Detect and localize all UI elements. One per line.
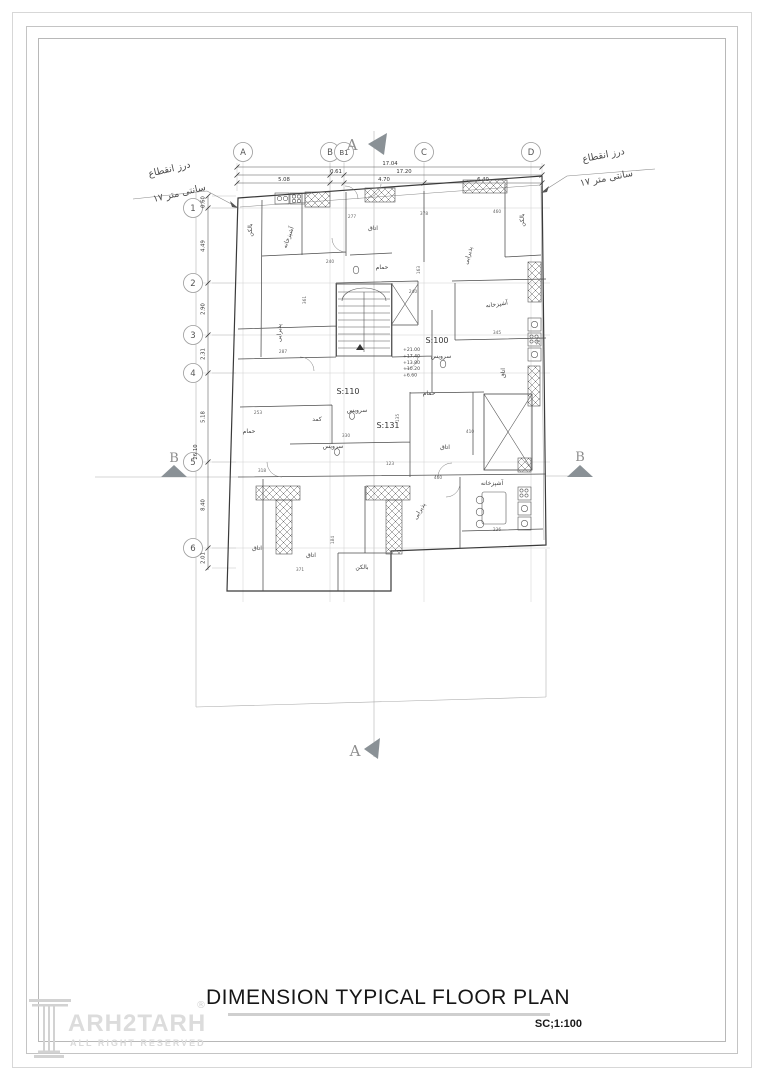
section-a-top-arrow bbox=[368, 133, 387, 155]
grid-label-2: 2 bbox=[190, 279, 195, 289]
toilet bbox=[440, 360, 446, 368]
room-label: اتاق bbox=[252, 545, 262, 552]
small-dim: 163 bbox=[416, 266, 422, 274]
dim-label: 8.40 bbox=[201, 498, 207, 510]
dim-label: 2.01 bbox=[201, 552, 207, 564]
grid-label-4: 4 bbox=[190, 369, 195, 379]
room-label: اتاق bbox=[368, 225, 378, 232]
sheet-title: DIMENSION TYPICAL FLOOR PLAN bbox=[200, 986, 576, 1010]
small-dim: 460 bbox=[434, 475, 442, 481]
title-underline bbox=[228, 1013, 550, 1016]
section-b-left-label: B bbox=[169, 451, 179, 466]
small-dim: 253 bbox=[254, 410, 262, 416]
small-dim: 371 bbox=[296, 567, 304, 573]
room-label: کمد bbox=[312, 416, 322, 423]
staircase bbox=[337, 284, 392, 356]
small-dim: 184 bbox=[330, 536, 336, 544]
section-b-left-arrow bbox=[161, 465, 187, 477]
logo-sub-text: ALL RIGHT RESERVED bbox=[70, 1038, 206, 1048]
grid-label-3: 3 bbox=[190, 331, 195, 341]
level-line: +21.00 bbox=[403, 347, 420, 353]
grid-label-D: D bbox=[528, 148, 535, 158]
logo-brand-text: ARH2TARH bbox=[68, 1010, 206, 1038]
logo-column-icon bbox=[28, 992, 72, 1062]
small-dim: 123 bbox=[386, 461, 394, 467]
section-a-bottom-label: A bbox=[349, 742, 361, 760]
room-label: بالکن bbox=[247, 223, 254, 237]
room-label: بالکن bbox=[519, 213, 526, 227]
small-dim: 410 bbox=[466, 429, 474, 435]
room-label: آشپزخانه bbox=[485, 297, 509, 309]
small-dim: 236 bbox=[493, 527, 501, 533]
drawing-sheet: ABB1CD123456 17.040.6117.205.084.706.400… bbox=[0, 0, 764, 1080]
room-label: بالکن bbox=[355, 564, 369, 571]
grid-label-1: 1 bbox=[190, 204, 195, 214]
dim-label: 0.60 bbox=[201, 195, 207, 207]
dim-label: 5.08 bbox=[278, 177, 290, 183]
room-label: اتاق bbox=[500, 368, 507, 378]
room-label: حمام bbox=[423, 390, 436, 397]
dim-label: 4.70 bbox=[378, 177, 390, 183]
small-dim: 240 bbox=[409, 289, 417, 295]
floor-plan-canvas: ABB1CD123456 17.040.6117.205.084.706.400… bbox=[0, 0, 764, 1080]
section-b-right-label: B bbox=[575, 450, 585, 465]
room-label: پذیرایی bbox=[463, 246, 475, 266]
small-dim: 285 bbox=[536, 337, 542, 345]
room-label: سرویس bbox=[347, 407, 368, 414]
dim-label: 0.61 bbox=[330, 169, 342, 175]
joint-note-left-1: درز انقطاع bbox=[147, 159, 191, 179]
small-dim: 345 bbox=[493, 330, 501, 336]
unit-label: S:100 bbox=[425, 336, 448, 345]
room-label: اتاق bbox=[440, 444, 450, 451]
dim-label: 17.20 bbox=[396, 169, 412, 175]
dim-total-label: 26.10 bbox=[193, 444, 199, 460]
grid-label-A: A bbox=[240, 148, 246, 158]
joint-note-right-1: درز انقطاع bbox=[581, 146, 625, 165]
level-line: +10.20 bbox=[403, 366, 420, 372]
room-label: آشپزخانه bbox=[481, 478, 504, 487]
stair-direction-arrow bbox=[356, 344, 364, 350]
small-dim: 318 bbox=[258, 468, 266, 474]
room-label: حمام bbox=[243, 428, 256, 435]
unit-label: S:110 bbox=[336, 387, 359, 396]
dim-label: 2.90 bbox=[201, 302, 207, 314]
grid-label-C: C bbox=[421, 148, 427, 158]
grid-label-B: B bbox=[327, 148, 333, 158]
small-dim: 361 bbox=[302, 296, 308, 304]
section-b-right-arrow bbox=[567, 465, 593, 477]
company-logo: ARH2TARH ALL RIGHT RESERVED ® bbox=[28, 992, 218, 1066]
grid-label-6: 6 bbox=[190, 544, 195, 554]
small-dim: 330 bbox=[342, 433, 350, 439]
level-line: +17.40 bbox=[403, 353, 420, 359]
room-label: سرویس bbox=[431, 353, 452, 360]
room-label: حمام bbox=[376, 264, 389, 271]
toilet bbox=[353, 266, 359, 274]
level-annotations: +21.00+17.40+13.80+10.20+6.60 bbox=[403, 347, 420, 379]
level-line: +6.60 bbox=[403, 373, 417, 379]
small-dim: 378 bbox=[420, 211, 428, 217]
small-dim: 135 bbox=[395, 414, 401, 422]
dim-label: 5.18 bbox=[201, 410, 207, 422]
dining-table bbox=[482, 492, 506, 524]
logo-registered-mark: ® bbox=[196, 1000, 206, 1011]
small-dim: 287 bbox=[279, 349, 287, 355]
dim-label: 17.04 bbox=[382, 161, 398, 167]
room-label: پذیرایی bbox=[412, 501, 427, 520]
section-a-top-label: A bbox=[346, 136, 358, 154]
dimension-lines: 17.040.6117.205.084.706.400.604.492.902.… bbox=[193, 161, 545, 570]
small-dim: 460 bbox=[493, 209, 501, 215]
room-label: پذیرایی bbox=[276, 324, 283, 342]
room-label: آشپزخانه bbox=[280, 225, 296, 249]
small-dim: 277 bbox=[348, 214, 356, 220]
sheet-scale: SC;1:100 bbox=[420, 1018, 582, 1030]
dim-label: 2.31 bbox=[201, 348, 207, 360]
joint-note-right-2: ۱۷ سانتی متر bbox=[579, 168, 634, 189]
dim-label: 4.49 bbox=[201, 240, 207, 252]
small-dim: 240 bbox=[326, 259, 334, 265]
hatched-walls bbox=[256, 180, 541, 554]
level-line: +13.80 bbox=[403, 360, 420, 366]
room-label: سرویس bbox=[323, 443, 344, 450]
section-a-bottom-arrow bbox=[364, 738, 380, 759]
room-label: اتاق bbox=[306, 552, 316, 559]
